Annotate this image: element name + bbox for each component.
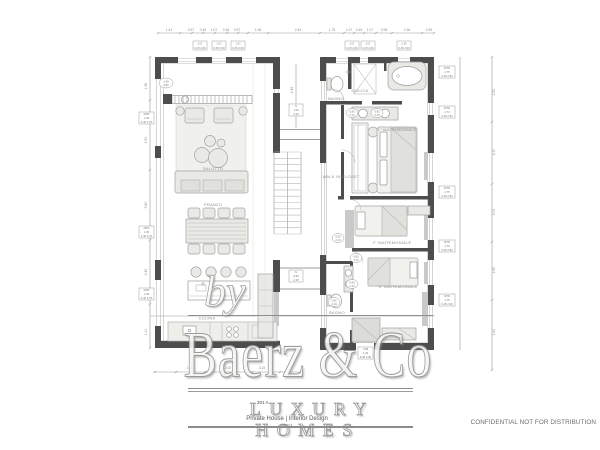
- svg-text:0.45 2.90: 0.45 2.90: [194, 46, 206, 50]
- svg-text:2.40: 2.40: [293, 278, 299, 282]
- room-label-walk-in: WALK IN CLOSET: [323, 174, 360, 179]
- pillow: [357, 212, 365, 229]
- svg-text:2.36: 2.36: [401, 42, 407, 46]
- svg-text:1.75: 1.75: [444, 190, 450, 194]
- svg-text:2.90: 2.90: [492, 267, 496, 274]
- sink: [345, 270, 351, 276]
- side-table: [176, 107, 184, 115]
- svg-text:2.10: 2.10: [335, 238, 341, 242]
- svg-text:N: N: [295, 270, 297, 274]
- svg-text:1.06: 1.06: [293, 108, 299, 112]
- room-label-living: SALOTTO: [203, 166, 223, 171]
- desk: [408, 206, 430, 215]
- svg-text:1.07: 1.07: [365, 42, 371, 46]
- pillow: [410, 262, 417, 278]
- blanket: [382, 206, 407, 236]
- svg-text:0.98: 0.98: [381, 28, 388, 32]
- svg-text:1.06: 1.06: [144, 230, 150, 234]
- sink: [359, 109, 368, 118]
- svg-text:0.45 2.90: 0.45 2.90: [441, 302, 453, 306]
- room-label-bath-main: BAGNO: [328, 96, 344, 101]
- svg-text:2.40 2.70: 2.40 2.70: [141, 234, 153, 238]
- room-label-master: 1° MATRIMONIALE: [378, 127, 417, 132]
- svg-text:MTR: MTR: [444, 186, 450, 190]
- svg-text:0.57: 0.57: [188, 28, 195, 32]
- svg-text:4.45: 4.45: [290, 87, 294, 94]
- svg-text:MTR: MTR: [444, 240, 450, 244]
- svg-text:MTR: MTR: [144, 288, 150, 292]
- svg-text:0.45 2.90: 0.45 2.90: [441, 194, 453, 198]
- watermark-by: by: [204, 266, 246, 317]
- svg-text:0.45 2.90: 0.45 2.90: [398, 46, 410, 50]
- svg-text:2.10: 2.10: [374, 113, 380, 117]
- svg-text:2.10: 2.10: [331, 302, 337, 306]
- svg-text:0.45 2.90: 0.45 2.90: [362, 46, 374, 50]
- room-label-bedroom3: 3° MATRIMONIALE: [379, 284, 418, 289]
- floor-plan-page: SALOTTO PRANZO CUCINA BAGNO DOCCIA 1° MA…: [0, 0, 600, 450]
- svg-text:0.57: 0.57: [234, 28, 241, 32]
- svg-text:0.46: 0.46: [223, 28, 230, 32]
- pillow: [380, 160, 387, 185]
- project-title: Private House | Interior Design: [187, 416, 387, 422]
- bar-stool: [191, 267, 201, 277]
- svg-text:0.45 2.90: 0.45 2.90: [441, 74, 453, 78]
- svg-text:3.00: 3.00: [492, 209, 496, 216]
- svg-text:2.40 2.70: 2.40 2.70: [141, 120, 153, 124]
- svg-text:2.50: 2.50: [492, 89, 496, 96]
- svg-text:1.75: 1.75: [444, 244, 450, 248]
- svg-text:0.45: 0.45: [356, 28, 363, 32]
- svg-text:1.06: 1.06: [144, 292, 150, 296]
- svg-text:0.45 2.90: 0.45 2.90: [213, 46, 225, 50]
- svg-text:MTR: MTR: [144, 226, 150, 230]
- svg-text:1.07: 1.07: [216, 42, 222, 46]
- svg-text:1.60: 1.60: [492, 329, 496, 336]
- svg-text:MTR: MTR: [144, 112, 150, 116]
- svg-text:1.07: 1.07: [367, 28, 374, 32]
- svg-text:2.36: 2.36: [404, 28, 411, 32]
- svg-text:2.10: 2.10: [349, 284, 355, 288]
- svg-text:MTR: MTR: [444, 294, 450, 298]
- svg-text:1.74: 1.74: [444, 110, 450, 114]
- svg-text:0.80: 0.80: [163, 83, 169, 87]
- svg-text:2.45: 2.45: [144, 269, 148, 276]
- master-bedroom: [342, 107, 417, 193]
- svg-text:0.45 2.90: 0.45 2.90: [441, 248, 453, 252]
- svg-text:1.75: 1.75: [444, 298, 450, 302]
- room-label-dining: PRANZO: [204, 202, 222, 207]
- svg-text:1.07: 1.07: [197, 42, 203, 46]
- svg-text:2.90: 2.90: [144, 137, 148, 144]
- svg-text:1.07: 1.07: [211, 28, 218, 32]
- svg-text:2.43: 2.43: [295, 28, 302, 32]
- svg-text:2.40 2.70: 2.40 2.70: [141, 296, 153, 300]
- wardrobe: [345, 210, 354, 248]
- svg-text:1.07: 1.07: [349, 42, 355, 46]
- sofa: [175, 171, 248, 193]
- svg-text:2.10: 2.10: [353, 258, 359, 262]
- side-table: [239, 107, 247, 115]
- svg-text:1.75: 1.75: [444, 70, 450, 74]
- nightstand: [368, 183, 378, 193]
- svg-text:0.45: 0.45: [200, 28, 207, 32]
- svg-text:1.07: 1.07: [235, 42, 241, 46]
- svg-text:1.75: 1.75: [329, 28, 336, 32]
- svg-text:0.45 2.90: 0.45 2.90: [232, 46, 244, 50]
- svg-text:5.80: 5.80: [144, 202, 148, 209]
- svg-text:2.10: 2.10: [349, 113, 355, 117]
- svg-text:1.10: 1.10: [144, 329, 148, 336]
- svg-text:1.06: 1.06: [144, 116, 150, 120]
- walk-in-closet-shelving: [352, 123, 368, 193]
- svg-text:0.90: 0.90: [293, 274, 299, 278]
- room-label-shower: DOCCIA: [351, 88, 368, 93]
- toilet: [327, 78, 331, 90]
- svg-text:MTR: MTR: [444, 66, 450, 70]
- nightstand: [368, 127, 378, 137]
- svg-text:N: N: [295, 104, 297, 108]
- dining-set: [186, 208, 248, 254]
- svg-text:1.35: 1.35: [144, 83, 148, 90]
- blanket: [391, 128, 416, 192]
- staircase: [274, 152, 301, 234]
- svg-text:0.45 2.90: 0.45 2.90: [441, 114, 453, 118]
- radiator-hatch: [163, 94, 252, 104]
- svg-text:0.45: 0.45: [426, 28, 433, 32]
- sheet-code: 201 A: [257, 400, 269, 405]
- watermark-brand: Baerz & Co: [183, 316, 433, 393]
- watermark-rule-mid: [188, 388, 413, 392]
- room-label-bedroom2: 2° MATRIMONIALE: [373, 240, 412, 245]
- svg-text:2.40: 2.40: [293, 112, 299, 116]
- pillow: [380, 132, 387, 157]
- svg-text:1.07: 1.07: [346, 28, 353, 32]
- svg-text:4.10: 4.10: [492, 149, 496, 156]
- blanket: [368, 258, 390, 286]
- svg-text:1.98: 1.98: [255, 28, 262, 32]
- confidential-note: CONFIDENTIAL NOT FOR DISTRIBUTION: [471, 419, 596, 426]
- watermark-rule-bottom: [188, 426, 413, 428]
- svg-text:0.45 2.90: 0.45 2.90: [346, 46, 358, 50]
- svg-text:1.41: 1.41: [166, 28, 173, 32]
- svg-text:MTR: MTR: [444, 106, 450, 110]
